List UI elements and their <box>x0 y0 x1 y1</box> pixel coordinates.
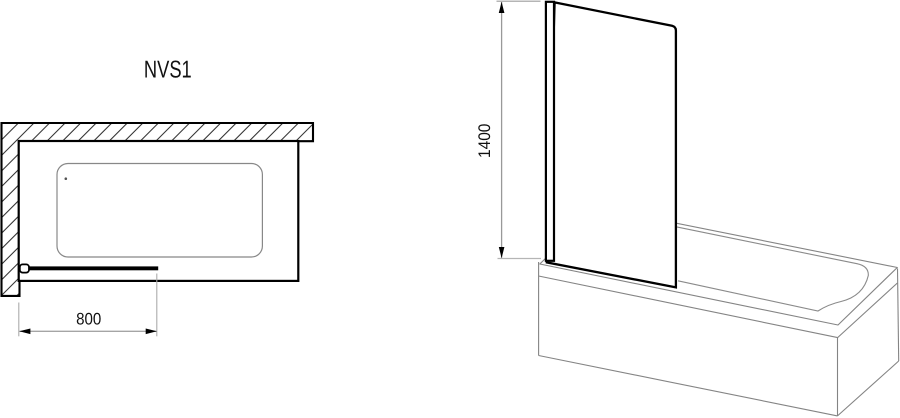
svg-text:800: 800 <box>76 309 101 328</box>
svg-text:1400: 1400 <box>475 124 494 158</box>
svg-text:NVS1: NVS1 <box>144 56 192 83</box>
